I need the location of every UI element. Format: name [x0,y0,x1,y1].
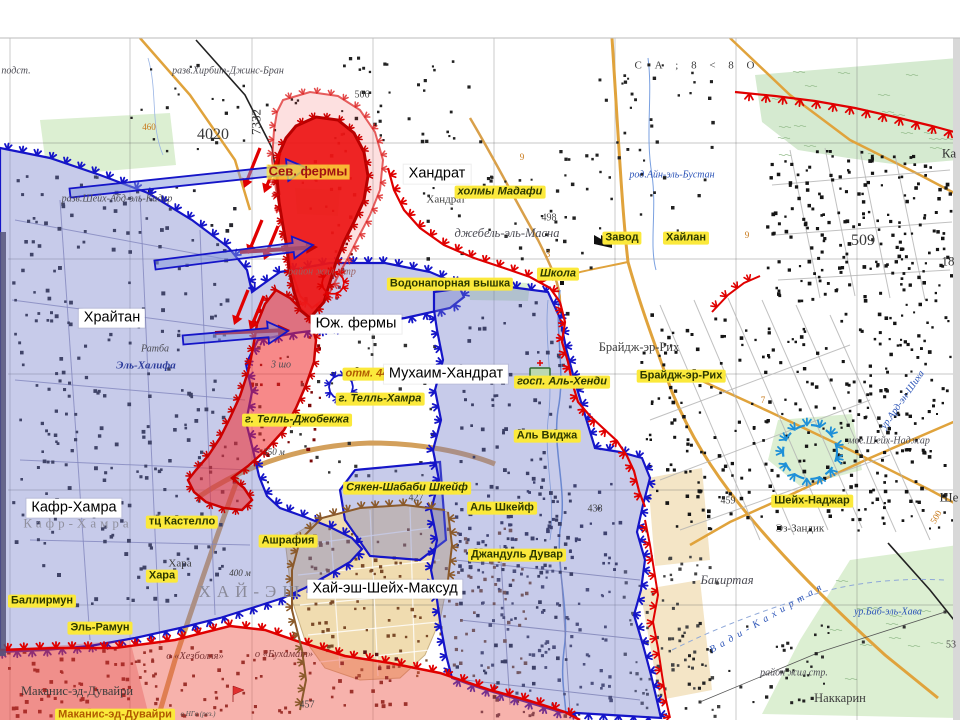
place-label: Сякен-Шабаби Шкейф [343,482,471,495]
place-label: госп. Аль-Хенди [514,376,610,389]
map-text: о «Бухамат» [255,649,313,661]
map-text: 9 [745,230,750,240]
place-label: Брайдж-эр-Рих [637,370,726,383]
place-label: холмы Мадафи [455,186,546,199]
map-text: Ратба [141,343,169,355]
map-text: 500 [928,509,944,526]
map-text: Маканис-эд-Дувайри [21,684,133,698]
map-text: Бакиртая [700,573,753,587]
map-text: о «Хезболля» [166,651,224,663]
map-text: Наккарин [814,691,866,705]
callout-label: Кафр-Хамра [26,499,121,518]
place-label: Хайлан [663,232,709,245]
map-text: разв.Хирбит-Джинс-Бран [172,65,284,77]
map-text: 457 [300,699,315,711]
map-text: Эль-Халифа [116,360,175,373]
map-text: 400 м [229,568,251,578]
map-text: ХАЙ-ЭШ [199,582,306,602]
place-label: Аль Виджа [514,430,581,443]
map-text: 438 [588,503,603,515]
map-text: ур.Ард-эн-Шиха [879,369,928,432]
callout-label: Хандрат [404,165,471,184]
map-text: Кафр-Хамра [23,517,132,532]
place-label: Ашрафия [259,535,318,548]
map-text: Хара [168,558,191,571]
map-text: о НГа (рез.) [180,710,215,718]
map-text: 509 [851,232,875,250]
callout-label: Мухаим-Хандрат [384,365,508,384]
map-labels-layer: Кафр-ХамраХАЙ-ЭШразв.Хирбит-Джинс-Бранпо… [0,0,960,720]
map-text: 460 [142,122,156,132]
map-text: 53 [946,639,956,651]
place-label: Шейх-Наджар [771,495,853,508]
map-text: Ше [940,491,959,506]
map-text: район жил. стр [288,266,356,278]
map-text: 4020 [197,126,229,144]
place-label: Джандуль Дувар [468,549,566,562]
map-text: Вади-Кахиртая [708,580,828,656]
map-viewport: Кафр-ХамраХАЙ-ЭШразв.Хирбит-Джинс-Бранпо… [0,0,960,720]
map-text: район жил.стр. [760,667,828,679]
map-text: 7 [761,395,766,405]
map-text: Брайдж-эр-Рих [599,340,680,354]
map-text: род.Айн-эль-Бустан [629,169,714,181]
place-label: Маканис-эд-Дувайри [55,709,175,720]
callout-label: Юж. фермы [311,315,402,334]
place-label: Эль-Рамун [67,622,132,635]
callout-label: Храйтан [79,309,145,328]
map-text: Эз-Зандик [776,523,824,536]
place-label: г. Телль-Хамра [336,393,425,406]
place-label: г. Телль-Джобекжа [242,414,352,427]
place-label: Сев. фермы [267,165,350,180]
map-text: 18 [942,255,955,270]
callout-label: Хай-эш-Шейх-Максуд [307,580,462,599]
map-text: 3 шо [271,359,291,371]
map-text: 3 [546,249,551,259]
place-label: тц Кастелло [146,516,218,529]
place-label: Завод [602,232,641,245]
place-label: Водонапорная вышка [387,278,513,291]
map-text: разв.Шейх-Абд-эль-Кадир [62,193,173,205]
map-text: 350 м [263,447,285,457]
map-text: Ка [942,147,956,162]
map-text: ур.Баб-эль-Хава [854,606,922,618]
place-label: Аль Шкейф [467,502,537,515]
place-label: Школа [537,268,579,281]
place-label: Баллирмун [8,595,76,608]
map-text: 7332 [250,109,265,135]
map-text: 498 [542,212,557,224]
map-text: С А ; 8 < 8 О [635,60,760,73]
map-text: 9 [520,152,525,162]
map-text: подст. [1,65,30,77]
map-text: мог.Шейх-Наджар [848,435,930,447]
place-label: Хара [146,570,178,583]
map-text: 506 [355,89,370,101]
map-text: джебель-эль-Масна [455,226,560,240]
map-text: 459 [721,495,736,507]
